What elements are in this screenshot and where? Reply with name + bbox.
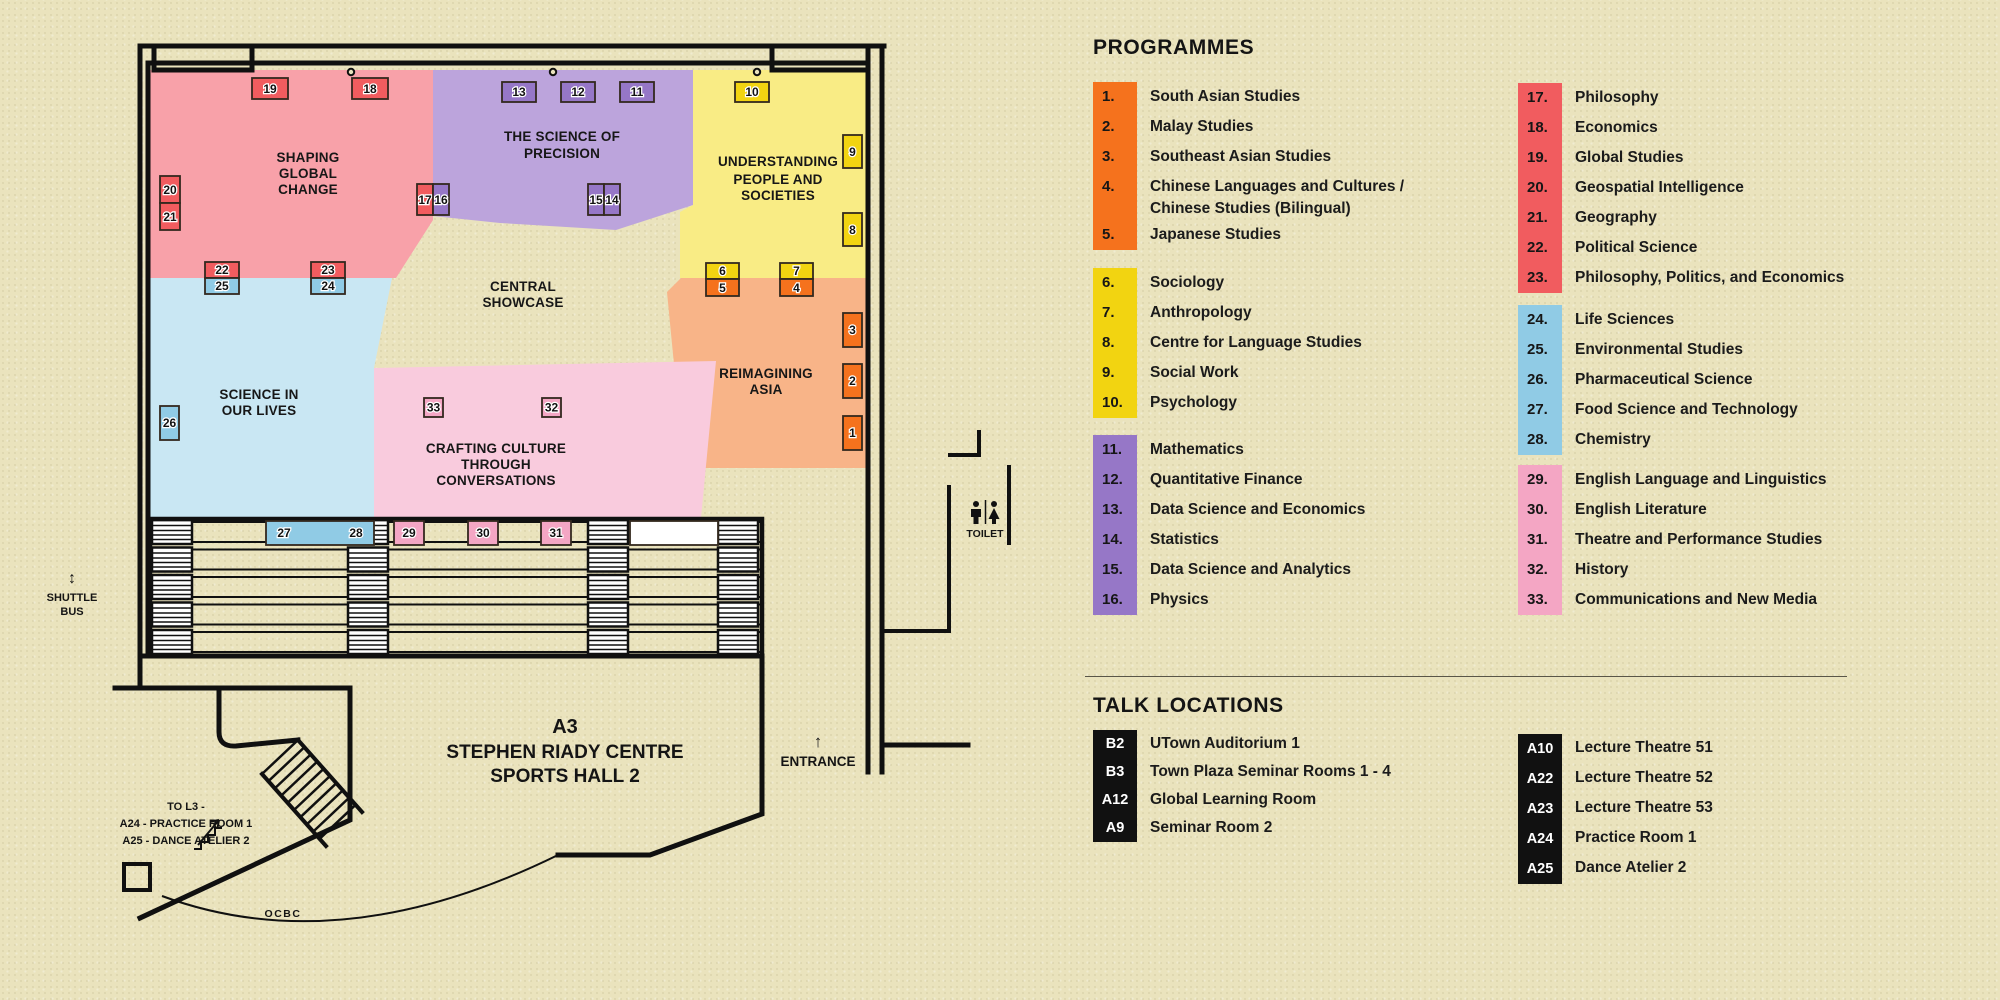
svg-text:2: 2 [849,374,856,388]
booth-3: 3 [843,313,862,347]
toilet-icon [971,500,1000,524]
svg-text:9: 9 [849,145,856,159]
list-item: 14.Statistics [1093,525,1412,555]
svg-text:33: 33 [427,401,441,415]
list-item: 12.Quantitative Finance [1093,465,1412,495]
zone-label-reimagining: REIMAGINING [719,366,813,381]
toilet-label: TOILET [966,528,1004,540]
svg-text:4: 4 [793,281,800,295]
programme-label: South Asian Studies [1137,82,1412,112]
zone-label-precision: THE SCIENCE OF [504,129,620,144]
list-item: A9Seminar Room 2 [1093,814,1391,842]
booth-31: 31 [541,521,571,545]
svg-text:BUS: BUS [60,606,83,618]
list-item: 29.English Language and Linguistics [1518,465,1885,495]
programme-group-arts: 29.English Language and Linguistics 30.E… [1518,465,1885,615]
booth-1: 1 [843,416,862,450]
list-item: 6.Sociology [1093,268,1412,298]
list-item: 11.Mathematics [1093,435,1412,465]
list-item: 18.Economics [1518,113,1885,143]
svg-text:21: 21 [163,210,177,224]
svg-text:ASIA: ASIA [749,382,782,397]
list-item: 20.Geospatial Intelligence [1518,173,1885,203]
entrance-arrow-icon: ↑ [814,732,823,751]
zone-label-central-showcase: CENTRAL [490,279,556,294]
booth-23: 23 [311,262,345,278]
list-item: 2.Malay Studies [1093,112,1412,142]
svg-text:11: 11 [631,85,644,99]
svg-text:SPORTS HALL 2: SPORTS HALL 2 [490,766,640,787]
svg-text:STEPHEN RIADY CENTRE: STEPHEN RIADY CENTRE [446,742,683,763]
entrance-label: ENTRANCE [780,754,855,769]
booth-18: 18 [352,78,388,99]
svg-text:CONVERSATIONS: CONVERSATIONS [436,473,555,488]
list-item: 21.Geography [1518,203,1885,233]
list-item: A23Lecture Theatre 53 [1518,794,1713,824]
programmes-title: PROGRAMMES [1093,36,1254,60]
booth-20: 20 [160,176,180,203]
booth-26: 26 [160,406,179,440]
programme-group-humanities: 17.Philosophy 18.Economics 19.Global Stu… [1518,83,1885,293]
booth-5: 5 [706,279,739,296]
section-divider [1085,676,1847,677]
svg-text:GLOBAL: GLOBAL [279,166,337,181]
list-item: 4.Chinese Languages and Cultures / Chine… [1093,172,1412,220]
programme-group-social-sciences: 6.Sociology 7.Anthropology 8.Centre for … [1093,268,1412,418]
list-item: 15.Data Science and Analytics [1093,555,1412,585]
list-item: 31.Theatre and Performance Studies [1518,525,1885,555]
door-marker-icon [754,69,760,75]
svg-text:22: 22 [215,263,229,277]
booth-8: 8 [843,213,862,246]
svg-text:7: 7 [793,264,800,278]
list-item: A10Lecture Theatre 51 [1518,734,1713,764]
booth-4: 4 [780,279,813,296]
zone-label-shaping: SHAPING [277,150,340,165]
svg-text:16: 16 [434,193,448,207]
list-item: A22Lecture Theatre 52 [1518,764,1713,794]
zone-label-crafting: CRAFTING CULTURE [426,441,566,456]
list-item: 27.Food Science and Technology [1518,395,1885,425]
svg-text:1: 1 [849,426,856,440]
svg-text:14: 14 [605,193,619,207]
list-item: 10.Psychology [1093,388,1412,418]
booth-21: 21 [160,203,180,230]
hall-title: A3 [552,716,578,738]
booth-27-28: 2728 [266,521,374,545]
booth-10: 10 [735,82,769,102]
to-l3-label: TO L3 - [167,801,205,813]
svg-text:8: 8 [849,223,856,237]
booth-33: 33 [424,398,443,417]
talk-code: B2 [1093,730,1137,758]
booth-19: 19 [252,78,288,99]
list-item: A25Dance Atelier 2 [1518,854,1713,884]
svg-text:30: 30 [476,526,490,540]
booth-2: 2 [843,364,862,398]
svg-text:A25 - DANCE ATELIER 2: A25 - DANCE ATELIER 2 [122,835,249,847]
list-item: 13.Data Science and Economics [1093,495,1412,525]
door-marker-icon [550,69,556,75]
svg-text:24: 24 [321,279,335,293]
list-item: 3.Southeast Asian Studies [1093,142,1412,172]
bleacher-seating [150,519,762,656]
ocbc-label: OCBC [265,908,302,920]
svg-text:SHOWCASE: SHOWCASE [482,295,563,310]
booth-30: 30 [468,521,498,545]
svg-text:31: 31 [549,526,563,540]
booth-22: 22 [205,262,239,278]
list-item: A12Global Learning Room [1093,786,1391,814]
svg-text:17: 17 [418,193,432,207]
list-item: B3Town Plaza Seminar Rooms 1 - 4 [1093,758,1391,786]
zone-label-understanding: UNDERSTANDING [718,154,838,169]
shuttle-arrow-icon: ↕ [68,570,76,587]
programme-group-sciences: 24.Life Sciences 25.Environmental Studie… [1518,305,1885,455]
svg-text:10: 10 [745,85,759,99]
svg-text:6: 6 [719,264,726,278]
svg-text:25: 25 [215,279,229,293]
zone-label-science-lives: SCIENCE IN [219,387,298,402]
booth-25: 25 [205,278,239,294]
svg-text:THROUGH: THROUGH [461,457,531,472]
list-item: 5.Japanese Studies [1093,220,1412,250]
list-item: 16.Physics [1093,585,1412,615]
svg-text:CHANGE: CHANGE [278,182,338,197]
programme-group-asian-studies: 1.South Asian Studies 2.Malay Studies 3.… [1093,82,1412,250]
svg-text:15: 15 [589,193,603,207]
svg-text:29: 29 [402,526,416,540]
svg-text:12: 12 [571,85,585,99]
list-item: 25.Environmental Studies [1518,335,1885,365]
list-item: 19.Global Studies [1518,143,1885,173]
svg-text:3: 3 [849,323,856,337]
booth-32: 32 [542,398,561,417]
svg-text:20: 20 [163,183,177,197]
list-item: 23.Philosophy, Politics, and Economics [1518,263,1885,293]
list-item: B2UTown Auditorium 1 [1093,730,1391,758]
talk-label: UTown Auditorium 1 [1137,730,1300,758]
talk-locations-left: B2UTown Auditorium 1 B3Town Plaza Semina… [1093,730,1391,842]
list-item: 1.South Asian Studies [1093,82,1412,112]
booth-12: 12 [561,82,595,102]
svg-text:28: 28 [349,526,363,540]
svg-text:13: 13 [512,85,526,99]
booth-17: 17 [417,184,433,215]
svg-text:5: 5 [719,281,726,295]
booth-14: 14 [604,184,620,215]
list-item: 22.Political Science [1518,233,1885,263]
svg-text:A24 - PRACTICE ROOM 1: A24 - PRACTICE ROOM 1 [120,818,253,830]
svg-text:PRECISION: PRECISION [524,146,600,161]
list-item: A24Practice Room 1 [1518,824,1713,854]
booth-7: 7 [780,263,813,279]
list-item: 8.Centre for Language Studies [1093,328,1412,358]
booth-15: 15 [588,184,604,215]
svg-text:18: 18 [363,82,377,96]
svg-text:26: 26 [163,416,177,430]
booth-9: 9 [843,135,862,168]
booth-11: 11 [620,82,654,102]
list-item: 7.Anthropology [1093,298,1412,328]
shuttle-bus-label: SHUTTLE [47,592,98,604]
booth-24: 24 [311,278,345,294]
booth-unlabeled [630,521,718,545]
booth-6: 6 [706,263,739,279]
svg-text:SOCIETIES: SOCIETIES [741,188,815,203]
svg-text:OUR LIVES: OUR LIVES [222,403,297,418]
programme-group-quantitative: 11.Mathematics 12.Quantitative Finance 1… [1093,435,1412,615]
pillar-box [124,864,150,890]
list-item: 9.Social Work [1093,358,1412,388]
talk-locations-title: TALK LOCATIONS [1093,694,1284,718]
list-item: 17.Philosophy [1518,83,1885,113]
list-item: 33.Communications and New Media [1518,585,1885,615]
list-item: 24.Life Sciences [1518,305,1885,335]
booth-13: 13 [502,82,536,102]
list-item: 28.Chemistry [1518,425,1885,455]
programme-number: 1. [1093,82,1137,112]
svg-text:27: 27 [277,526,291,540]
zone-crafting-culture [374,361,716,518]
booth-29: 29 [394,521,424,545]
door-marker-icon [348,69,354,75]
svg-text:PEOPLE AND: PEOPLE AND [733,172,822,187]
talk-locations-right: A10Lecture Theatre 51 A22Lecture Theatre… [1518,734,1713,884]
ocbc-path-line [162,855,558,921]
svg-text:32: 32 [545,401,559,415]
svg-text:23: 23 [321,263,335,277]
list-item: 30.English Literature [1518,495,1885,525]
svg-text:19: 19 [263,82,277,96]
list-item: 26.Pharmaceutical Science [1518,365,1885,395]
floor-plan-map: SHAPING GLOBAL CHANGE THE SCIENCE OF PRE… [0,0,1070,1000]
list-item: 32.History [1518,555,1885,585]
booth-16: 16 [433,184,449,215]
